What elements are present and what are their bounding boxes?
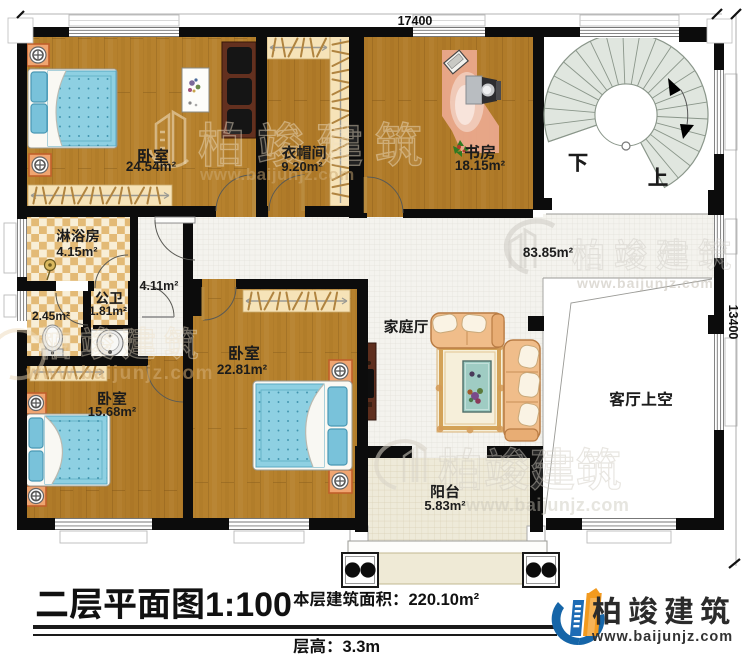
svg-text:www.baijunjz.com: www.baijunjz.com <box>576 275 714 291</box>
svg-text:柏竣建筑: 柏竣建筑 <box>592 587 736 631</box>
svg-text:17400: 17400 <box>398 14 433 28</box>
svg-text:www.baijunjz.com: www.baijunjz.com <box>465 495 629 515</box>
svg-text:客厅上空: 客厅上空 <box>609 386 673 410</box>
svg-text:www.baijunjz.com: www.baijunjz.com <box>591 629 733 645</box>
svg-text:9.20m²: 9.20m² <box>281 159 323 174</box>
svg-text:下: 下 <box>568 147 589 177</box>
svg-text:4.15m²: 4.15m² <box>56 244 98 259</box>
svg-text:22.81m²: 22.81m² <box>217 362 268 377</box>
svg-text:5.83m²: 5.83m² <box>424 498 466 513</box>
svg-text:柏竣建筑: 柏竣建筑 <box>38 317 206 366</box>
svg-text:2.45m²: 2.45m² <box>32 309 70 323</box>
svg-text:18.15m²: 18.15m² <box>455 158 506 173</box>
svg-text:上: 上 <box>648 162 669 192</box>
svg-text:淋浴房: 淋浴房 <box>56 225 100 246</box>
svg-text:24.54m²: 24.54m² <box>126 159 177 174</box>
svg-text:柏竣建筑: 柏竣建筑 <box>438 434 622 499</box>
svg-text:83.85m²: 83.85m² <box>523 245 574 260</box>
svg-text:4.11m²: 4.11m² <box>140 279 179 293</box>
svg-text:www.baijunjz.com: www.baijunjz.com <box>199 165 355 184</box>
svg-text:1.81m²: 1.81m² <box>89 304 127 318</box>
svg-text:13400: 13400 <box>726 305 740 340</box>
svg-text:柏竣建筑: 柏竣建筑 <box>572 229 740 277</box>
svg-text:家庭厅: 家庭厅 <box>383 316 428 337</box>
svg-text:www.baijunjz.com: www.baijunjz.com <box>25 363 214 384</box>
svg-text:15.68m²: 15.68m² <box>88 404 137 419</box>
svg-text:卧室: 卧室 <box>228 340 260 364</box>
